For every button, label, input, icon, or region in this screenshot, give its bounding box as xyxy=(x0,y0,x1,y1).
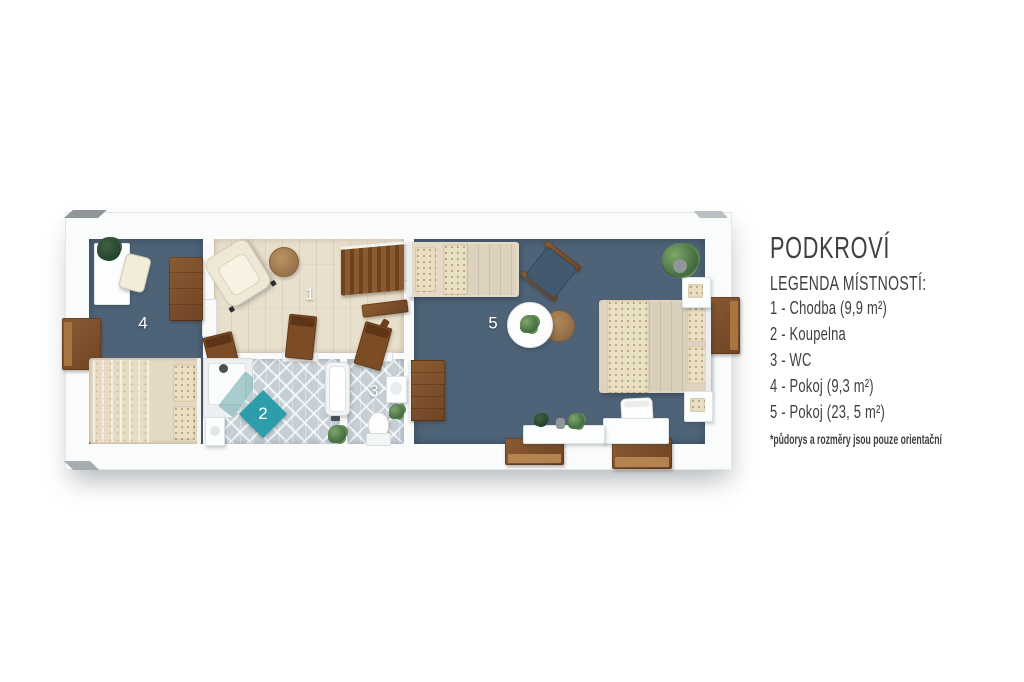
legend-title: PODKROVÍ xyxy=(770,230,942,266)
room5-dresser xyxy=(409,360,445,421)
room-number-5: 5 xyxy=(488,315,497,332)
legend-item-4: 4 - Pokoj (9,3 m²) xyxy=(770,375,918,397)
floorplan: 2 xyxy=(65,212,732,470)
room4-bed-headboard xyxy=(197,358,201,444)
legend-item-5-text: 5 - Pokoj (23, 5 m²) xyxy=(770,401,885,423)
hall-chair-2 xyxy=(285,314,317,361)
wc-sink-bowl xyxy=(390,382,402,395)
room-number-2: 2 xyxy=(258,404,267,424)
legend-title-text: PODKROVÍ xyxy=(770,230,890,266)
legend-item-2: 2 - Koupelna xyxy=(770,323,879,345)
single-bed-duvet xyxy=(467,244,516,295)
legend-subtitle-text: LEGENDA MÍSTNOSTÍ: xyxy=(770,273,926,296)
door-room4 xyxy=(202,299,217,337)
room-number-1: 1 xyxy=(305,286,314,303)
dormer-window-2-sill xyxy=(615,457,669,467)
room4-plant xyxy=(97,237,121,261)
room-number-3: 3 xyxy=(369,383,378,400)
double-bed-pillow-1 xyxy=(687,306,707,342)
room5-desk xyxy=(603,418,669,444)
window-left-sill xyxy=(64,322,72,366)
legend-item-5: 5 - Pokoj (23, 5 m²) xyxy=(770,401,934,423)
wall-corner-accent-bl xyxy=(64,461,99,470)
room5-single-bed xyxy=(407,242,519,297)
legend-item-3: 3 - WC xyxy=(770,349,829,371)
bathroom-cabinet xyxy=(205,417,225,446)
room5-plant xyxy=(662,243,698,277)
sideboard-plant-green xyxy=(568,413,584,429)
bathtub-basin xyxy=(329,366,346,412)
room4-bed-blanket xyxy=(93,360,151,442)
legend-subtitle: LEGENDA MÍSTNOSTÍ: xyxy=(770,273,993,296)
hall-coffee-table xyxy=(269,247,299,277)
legend-footnote-text: *půdorys a rozměry jsou pouze orientační xyxy=(770,432,942,447)
double-bed-headboard xyxy=(706,300,711,393)
double-bed-throw xyxy=(607,300,649,393)
double-bed-duvet xyxy=(649,302,687,391)
bathroom-cabinet-door xyxy=(210,426,220,436)
dormer-window-1-sill xyxy=(508,454,561,463)
room4-wardrobe xyxy=(169,257,203,321)
legend-item-1: 1 - Chodba (9,9 m²) xyxy=(770,297,937,319)
single-bed-headboard xyxy=(407,242,412,297)
wall-corner-accent-tr xyxy=(694,211,728,218)
legend-footnote: *půdorys a rozměry jsou pouze orientační xyxy=(770,432,1024,447)
legend-item-1-text: 1 - Chodba (9,9 m²) xyxy=(770,297,887,319)
room4-bed-pillow-2 xyxy=(173,406,195,440)
nightstand-bottom xyxy=(684,391,713,422)
wall-corner-accent-tl xyxy=(64,210,107,218)
nightstand-top xyxy=(682,277,711,308)
double-bed-pillow-2 xyxy=(687,346,707,384)
single-bed-blanket xyxy=(443,244,468,295)
room5-double-bed xyxy=(599,300,711,393)
stair-balustrade xyxy=(341,241,404,296)
sideboard-plant-dark xyxy=(534,413,548,427)
sideboard-figurine xyxy=(556,418,565,429)
bathroom-plant xyxy=(328,425,346,443)
wc-plant xyxy=(389,404,404,419)
room4-bed-pillow-1 xyxy=(173,364,195,402)
nightstand-top-drawer xyxy=(688,284,703,298)
legend-item-3-text: 3 - WC xyxy=(770,349,812,371)
nightstand-bottom-drawer xyxy=(690,398,705,412)
bathtub-faucet xyxy=(331,416,340,421)
floorplan-page: 2 xyxy=(0,0,1024,682)
legend-item-4-text: 4 - Pokoj (9,3 m²) xyxy=(770,375,874,397)
legend-item-2-text: 2 - Koupelna xyxy=(770,323,846,345)
wc-toilet-tank xyxy=(366,433,391,446)
bathtub xyxy=(325,362,350,416)
wc-sink xyxy=(386,376,407,403)
shower-head xyxy=(219,364,228,373)
single-bed-pillow xyxy=(415,247,436,292)
room-number-4: 4 xyxy=(138,315,147,332)
room4-bed xyxy=(89,358,201,444)
window-right-sill xyxy=(730,301,738,350)
hall-armchair-seat xyxy=(216,252,261,298)
room5-table-plant xyxy=(520,315,538,333)
room5-plant-pot xyxy=(673,259,687,273)
